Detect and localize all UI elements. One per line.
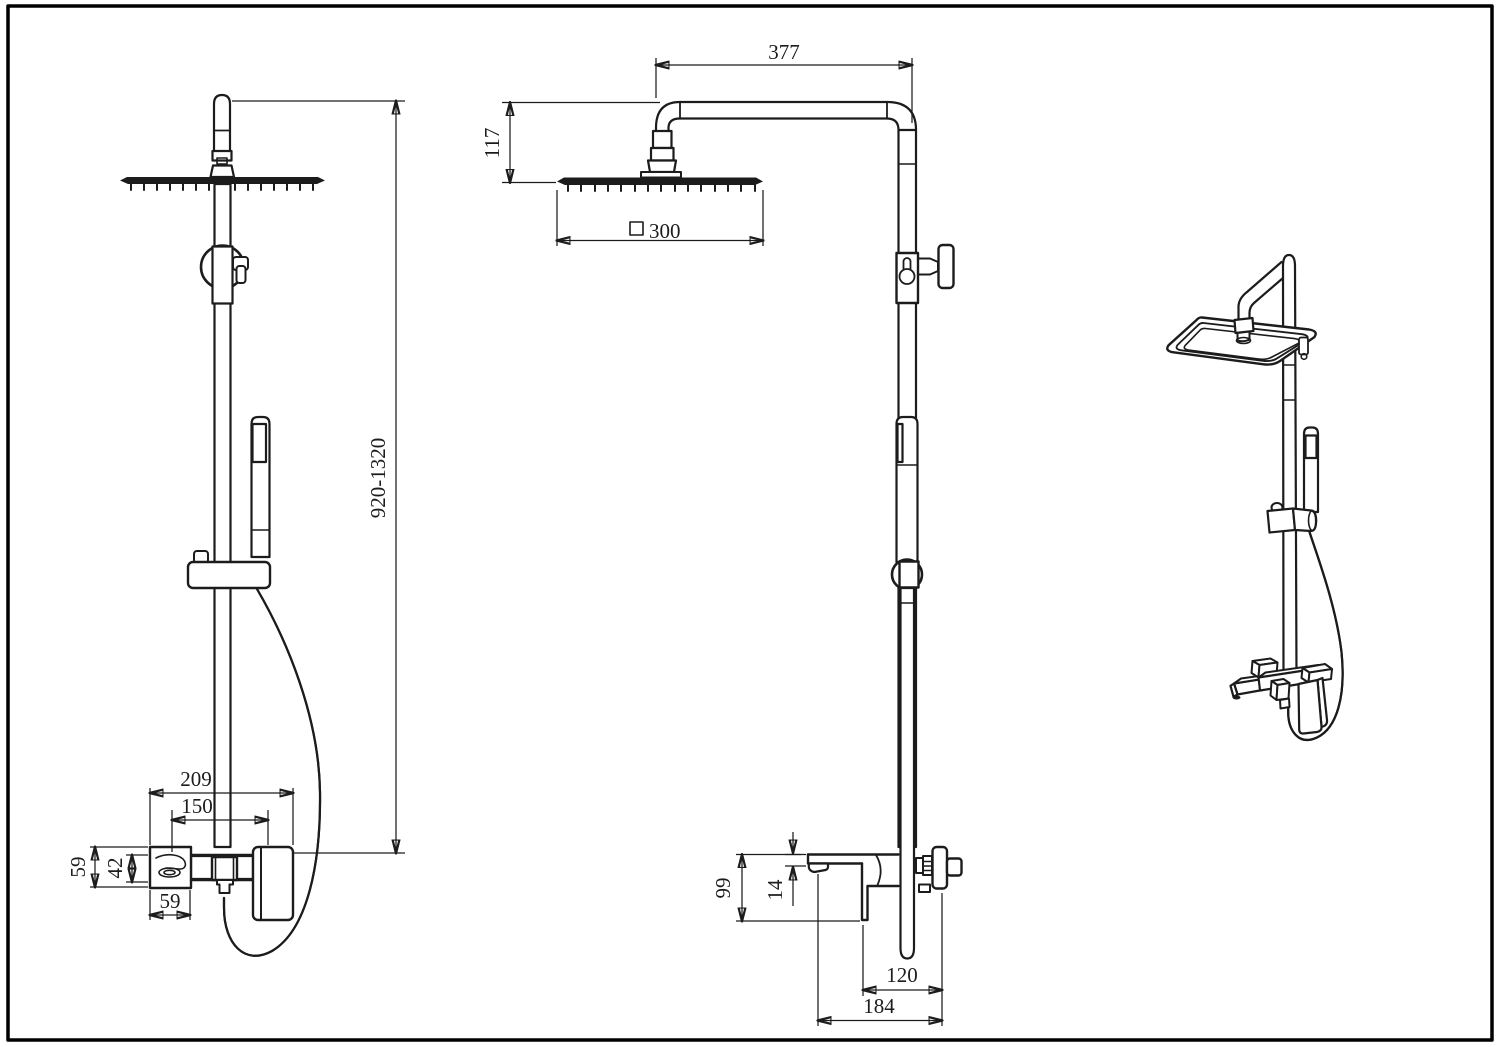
- hand-shower-front: [892, 417, 922, 959]
- faucet-front: [808, 847, 962, 920]
- dim-spout-drop-label: 14: [763, 879, 787, 901]
- holder-hook-3d: [1299, 338, 1308, 360]
- hose-connector-3d: [1280, 699, 1290, 709]
- diverter-bracket-front: [897, 245, 954, 303]
- front-view: 377 117 300 99 14 120: [480, 40, 962, 1026]
- diverter-knob: [939, 245, 954, 288]
- faucet-handle-front: [947, 859, 962, 876]
- upper-holder-side: [201, 246, 248, 304]
- dim-hand-shower-offset-label: 120: [886, 963, 918, 987]
- side-view: 920-1320 209 150 59 42 59: [66, 95, 405, 956]
- arm-stub-side: [211, 95, 235, 177]
- dim-port-spacing-label: 150: [181, 794, 213, 818]
- hand-shower-side: [252, 417, 270, 557]
- faucet-handle-side: [253, 847, 293, 920]
- dim-overall-depth: 184: [818, 874, 942, 1026]
- dim-faucet-width-label: 209: [180, 767, 212, 791]
- drawing-sheet: 920-1320 209 150 59 42 59: [0, 0, 1500, 1047]
- dim-arm-drop-label: 117: [480, 128, 504, 159]
- dim-faucet-height-label: 99: [711, 878, 735, 899]
- dim-body-height-label: 59: [66, 857, 90, 878]
- dim-spout-width: 59: [150, 889, 190, 920]
- dim-inner-height: 42: [103, 855, 148, 882]
- nozzle-ticks: [568, 185, 755, 191]
- wand-handle: [901, 588, 915, 959]
- hose-connector-side: [217, 880, 233, 893]
- shower-arm-front: [641, 102, 916, 178]
- dim-overall-depth-label: 184: [863, 994, 895, 1018]
- perspective-view: [1167, 255, 1342, 740]
- dim-head-size: 300: [557, 190, 763, 246]
- dim-spout-width-label: 59: [160, 889, 181, 913]
- dim-arm-drop: 117: [480, 103, 660, 183]
- shower-arm-3d: [1238, 262, 1283, 320]
- dim-overall-height-label: 920-1320: [366, 438, 390, 519]
- spout-outlet: [809, 864, 828, 873]
- handle-flange: [933, 847, 948, 889]
- spout-outlet-3d: [1233, 696, 1241, 700]
- riser-pipe-3d: [1283, 255, 1297, 677]
- faucet-3d: [1231, 659, 1333, 734]
- arm-connector-3d: [1235, 318, 1254, 344]
- dim-head-size-label: 300: [649, 219, 681, 243]
- handle-lever-3d: [1299, 680, 1322, 734]
- dim-spout-drop: 14: [763, 832, 806, 906]
- dim-arm-reach-label: 377: [768, 40, 800, 64]
- technical-drawing: 920-1320 209 150 59 42 59: [0, 0, 1500, 1047]
- dim-arm-reach: 377: [656, 40, 912, 123]
- hand-shower-3d: [1304, 428, 1318, 513]
- shower-head-front: [557, 178, 763, 192]
- dim-inner-height-label: 42: [103, 858, 127, 879]
- square-symbol-icon: [630, 222, 643, 235]
